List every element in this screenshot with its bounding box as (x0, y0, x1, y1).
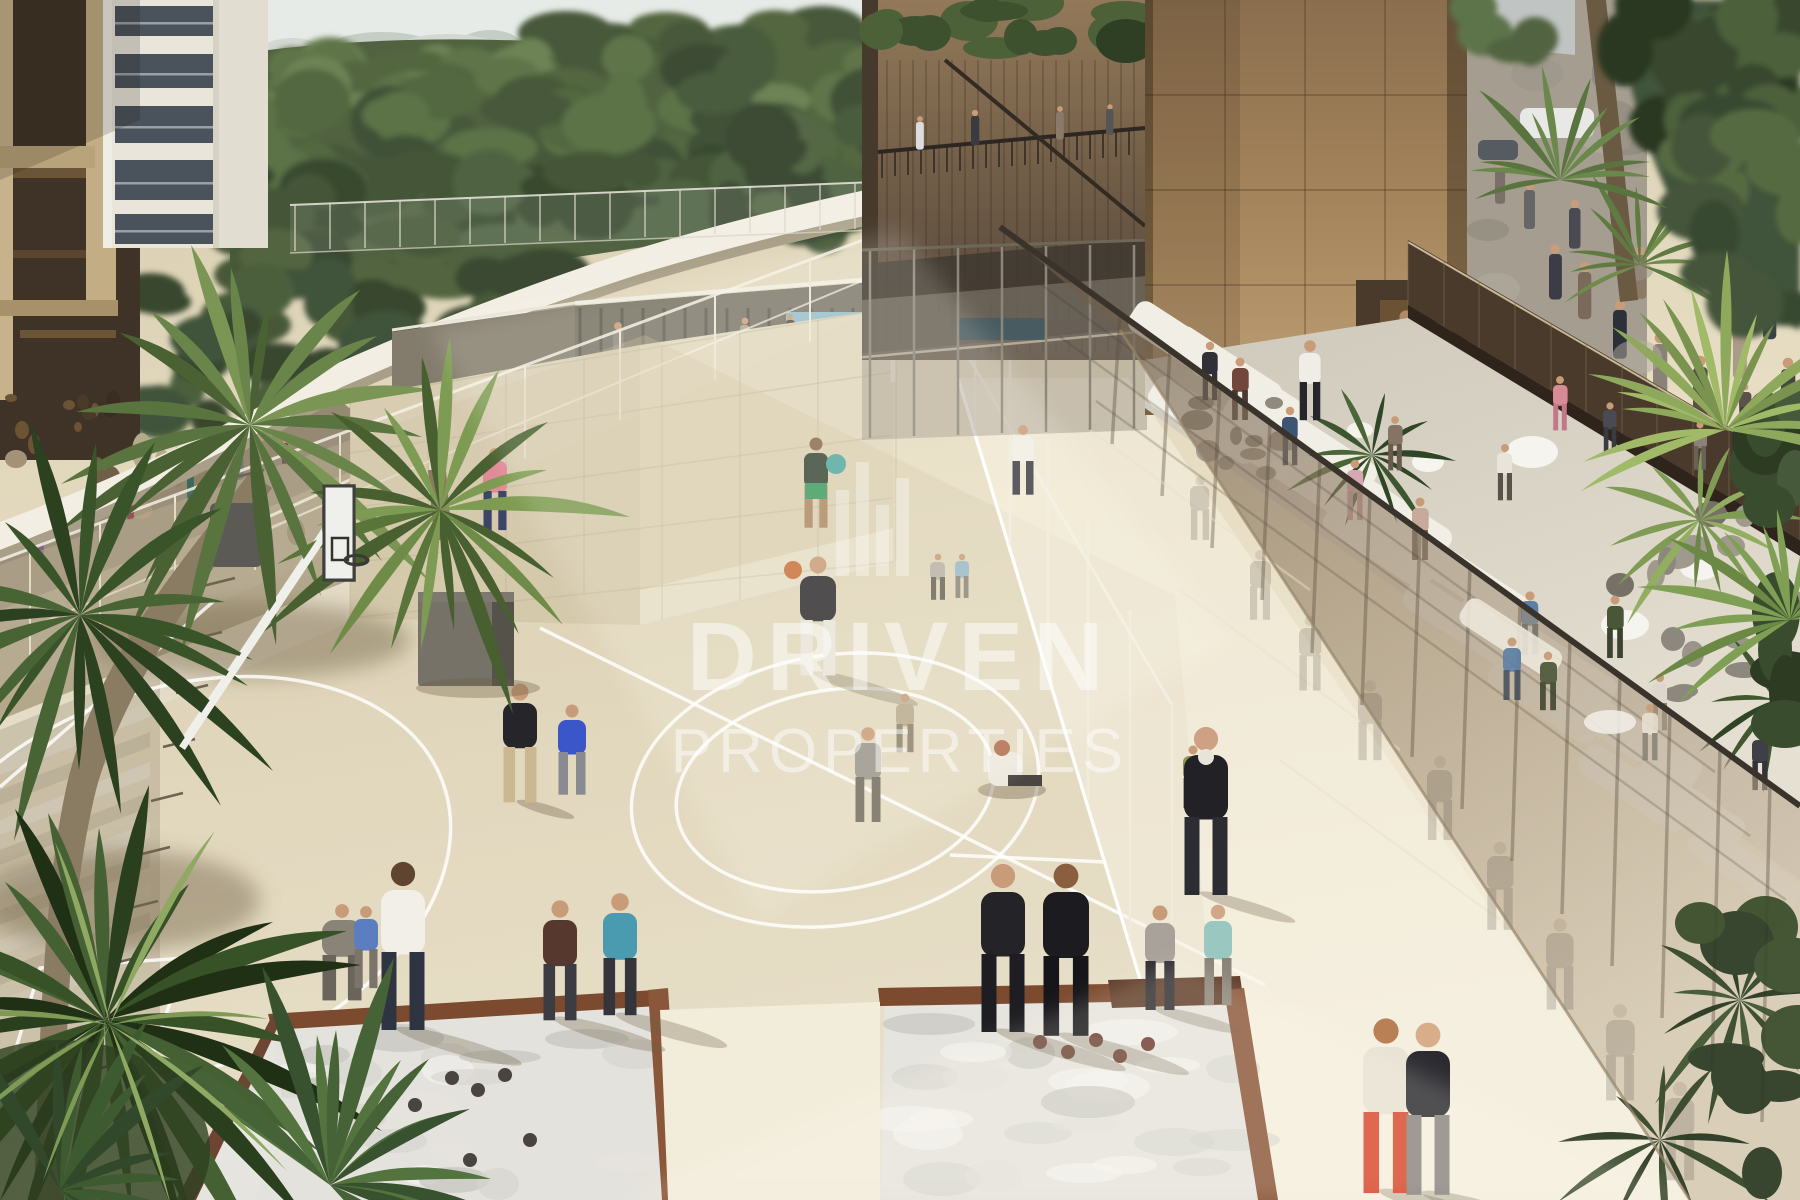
svg-text:DRIVEN: DRIVEN (687, 602, 1114, 711)
svg-text:PROPERTIES: PROPERTIES (671, 717, 1130, 786)
